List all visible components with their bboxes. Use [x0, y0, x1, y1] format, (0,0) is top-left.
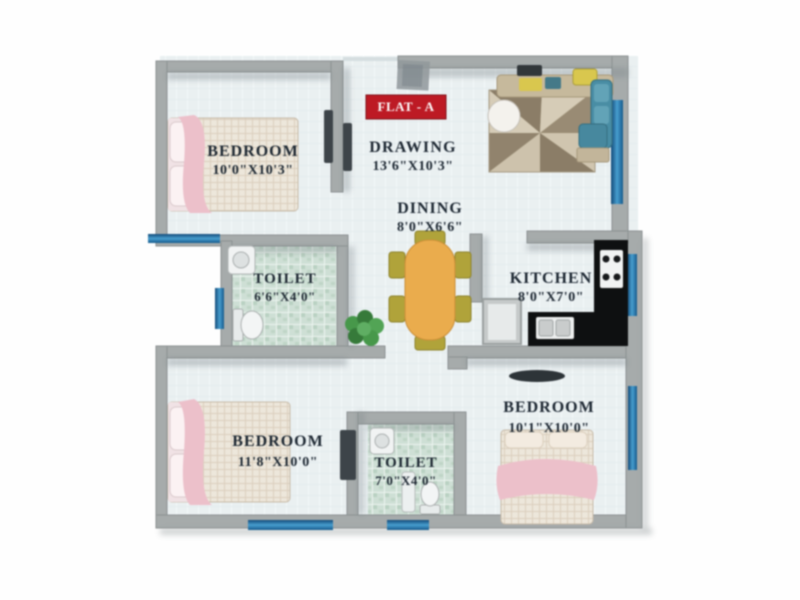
svg-text:8'0"X6'6": 8'0"X6'6" — [397, 220, 463, 235]
svg-text:KITCHEN: KITCHEN — [510, 270, 593, 287]
svg-text:8'0"X7'0": 8'0"X7'0" — [518, 290, 584, 305]
svg-text:10'0"X10'3": 10'0"X10'3" — [213, 163, 294, 178]
svg-text:BEDROOM: BEDROOM — [232, 433, 323, 450]
svg-text:TOILET: TOILET — [374, 455, 437, 471]
svg-text:BEDROOM: BEDROOM — [503, 399, 594, 416]
svg-text:BEDROOM: BEDROOM — [207, 143, 298, 160]
svg-text:11'8"X10'0": 11'8"X10'0" — [238, 455, 318, 470]
svg-text:DRAWING: DRAWING — [369, 139, 457, 156]
svg-text:10'1"X10'0": 10'1"X10'0" — [509, 421, 590, 436]
svg-text:FLAT - A: FLAT - A — [378, 99, 435, 114]
svg-text:DINING: DINING — [397, 200, 463, 217]
svg-text:TOILET: TOILET — [253, 271, 316, 287]
svg-text:6'6"X4'0": 6'6"X4'0" — [254, 289, 316, 304]
svg-text:7'0"X4'0": 7'0"X4'0" — [375, 473, 437, 488]
svg-text:13'6"X10'3": 13'6"X10'3" — [373, 159, 454, 174]
